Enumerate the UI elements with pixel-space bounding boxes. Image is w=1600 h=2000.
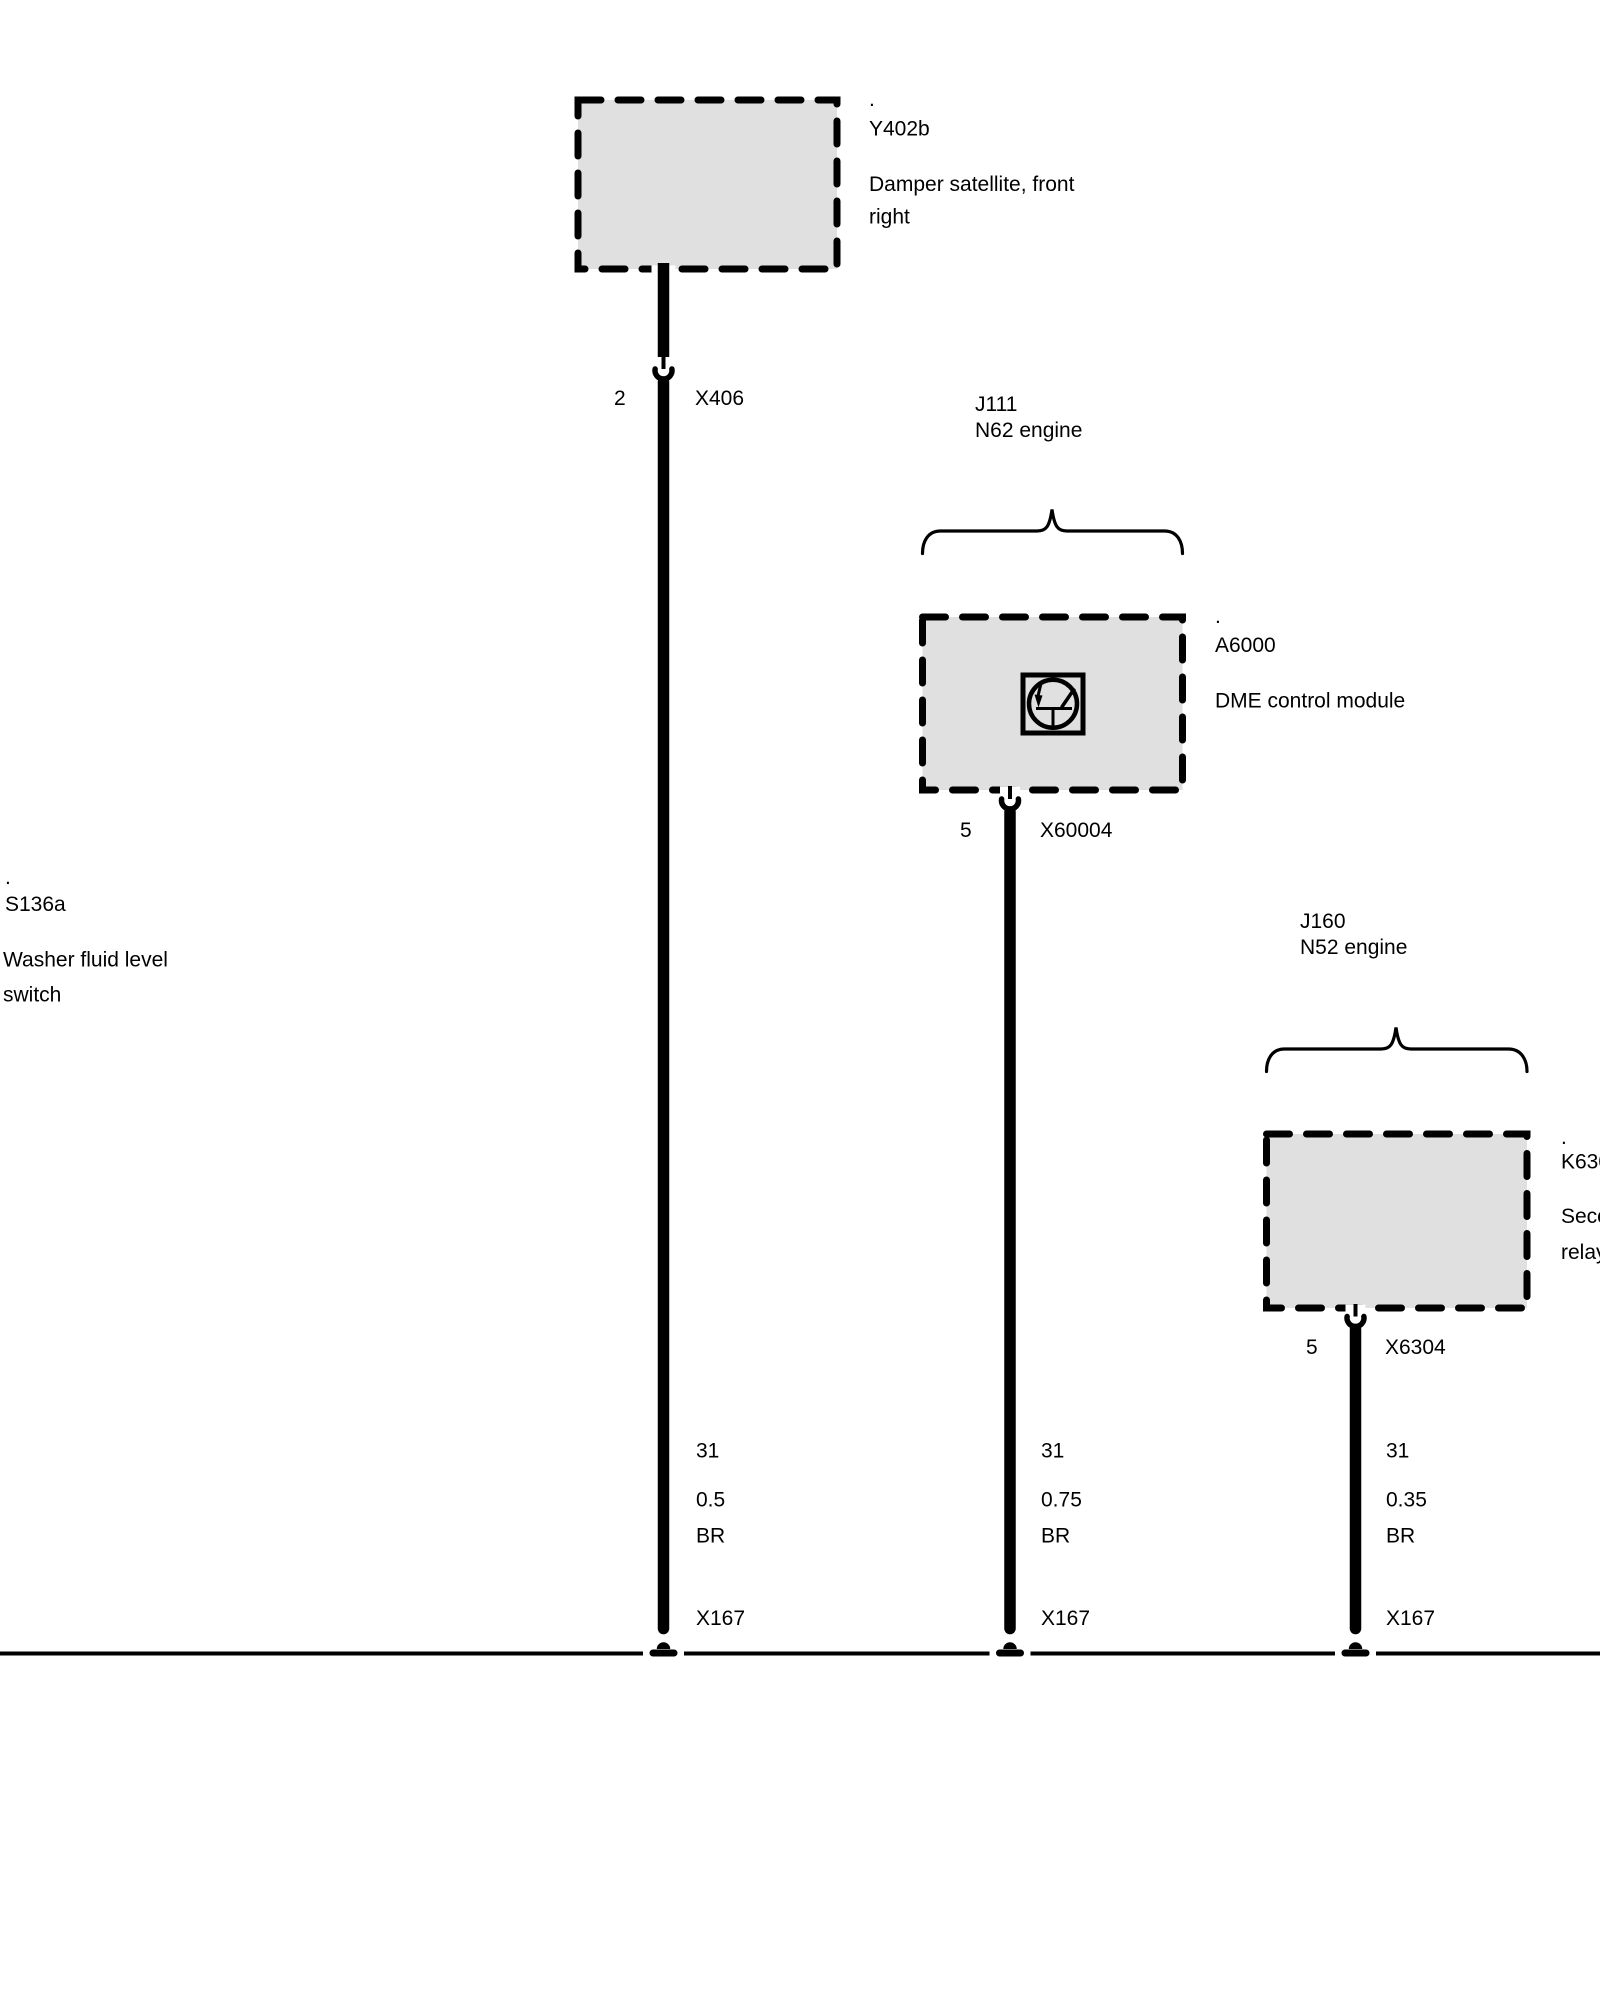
svg-text:DME control module: DME control module (1215, 690, 1405, 713)
svg-text:2: 2 (614, 387, 626, 410)
svg-text:J111: J111 (975, 393, 1017, 416)
svg-text:X167: X167 (1386, 1607, 1435, 1630)
svg-text:0.5: 0.5 (696, 1489, 725, 1512)
svg-text:5: 5 (960, 819, 972, 842)
svg-text:N52 engine: N52 engine (1300, 936, 1407, 959)
svg-text:Y402b: Y402b (869, 118, 930, 141)
svg-text:X406: X406 (695, 387, 744, 410)
svg-text:.: . (5, 866, 11, 889)
svg-text:5: 5 (1306, 1336, 1318, 1359)
svg-text:31: 31 (1386, 1440, 1409, 1463)
svg-text:A6000: A6000 (1215, 634, 1276, 657)
svg-text:.: . (1215, 605, 1221, 628)
svg-text:S136a: S136a (5, 893, 66, 916)
svg-text:31: 31 (1041, 1440, 1064, 1463)
svg-text:BR: BR (1386, 1525, 1415, 1548)
svg-text:X6304: X6304 (1385, 1336, 1446, 1359)
svg-text:N62 engine: N62 engine (975, 419, 1082, 442)
svg-text:K6300: K6300 (1561, 1151, 1600, 1174)
svg-text:Secondary: Secondary (1561, 1205, 1600, 1228)
svg-text:X167: X167 (696, 1607, 745, 1630)
svg-text:BR: BR (696, 1525, 725, 1548)
svg-text:X167: X167 (1041, 1607, 1090, 1630)
svg-text:right: right (869, 206, 910, 229)
svg-text:Washer fluid level: Washer fluid level (3, 949, 168, 972)
svg-text:X60004: X60004 (1040, 819, 1113, 842)
svg-text:relay: relay (1561, 1241, 1600, 1264)
svg-text:.: . (1561, 1126, 1567, 1149)
svg-text:31: 31 (696, 1440, 719, 1463)
svg-text:0.75: 0.75 (1041, 1489, 1082, 1512)
svg-text:Damper satellite, front: Damper satellite, front (869, 173, 1075, 196)
svg-text:BR: BR (1041, 1525, 1070, 1548)
svg-text:.: . (869, 88, 875, 111)
svg-text:switch: switch (3, 984, 61, 1007)
svg-text:J160: J160 (1300, 910, 1346, 933)
svg-text:0.35: 0.35 (1386, 1489, 1427, 1512)
